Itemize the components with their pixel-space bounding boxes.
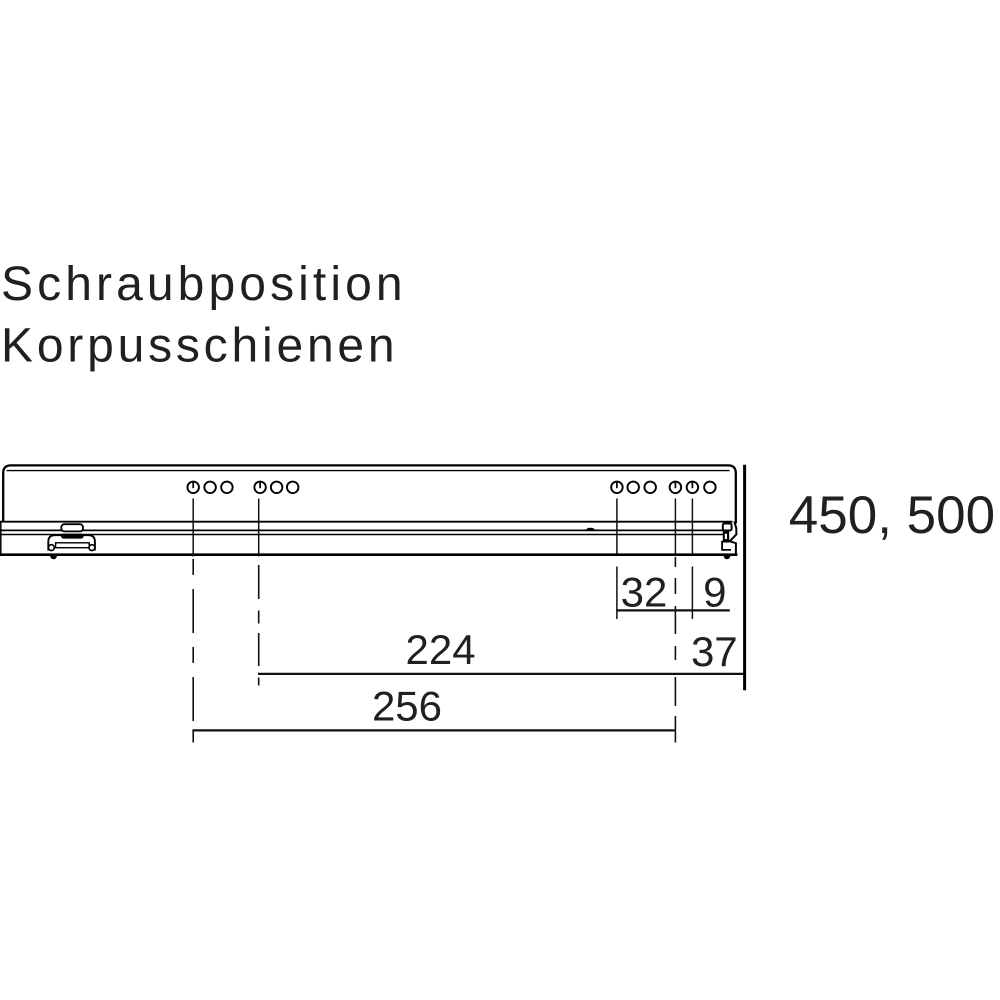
svg-text:32: 32 [621,568,668,615]
svg-text:224: 224 [406,626,476,673]
svg-text:Schraubposition: Schraubposition [1,258,407,311]
svg-text:256: 256 [372,682,442,729]
svg-text:9: 9 [703,568,726,615]
svg-text:450, 500: 450, 500 [789,486,995,545]
svg-text:37: 37 [691,628,738,675]
svg-text:Korpusschienen: Korpusschienen [1,320,398,373]
